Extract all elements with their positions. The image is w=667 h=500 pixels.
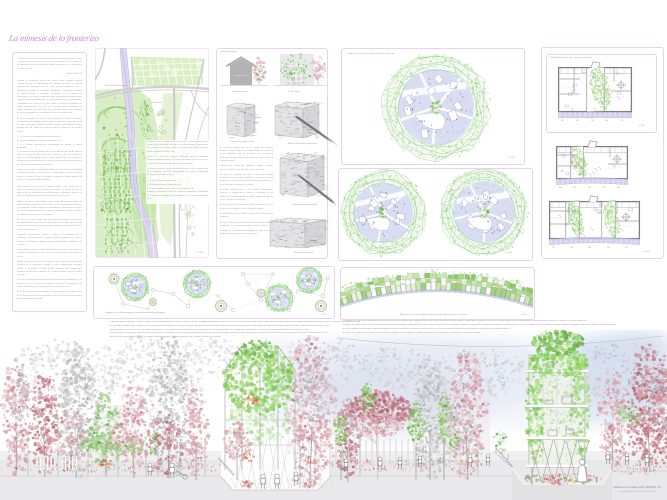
svg-text:vivienda arbol: vivienda arbol [234, 75, 247, 77]
svg-text:Diagramh en urbbe energetica c: Diagramh en urbbe energetica como habjet… [105, 311, 165, 314]
svg-text:215: 215 [620, 120, 623, 122]
svg-text:e 1:006: e 1:006 [321, 314, 327, 316]
svg-text:e 1:500: e 1:500 [520, 314, 526, 316]
svg-text:456: 456 [602, 187, 605, 189]
svg-text:260: 260 [588, 247, 591, 249]
svg-text:382: 382 [617, 187, 620, 189]
svg-text:232: 232 [591, 120, 594, 122]
svg-text:Stage Real del Manzanares: Stage Real del Manzanares [105, 84, 127, 87]
svg-text:camino del rio: camino del rio [151, 102, 162, 104]
svg-text:207: 207 [552, 247, 555, 249]
svg-text:412: 412 [576, 120, 579, 122]
svg-text:380: 380 [570, 247, 573, 249]
svg-text:419: 419 [588, 187, 591, 189]
svg-text:273: 273 [625, 247, 628, 249]
svg-text:441: 441 [561, 120, 564, 122]
svg-text:362: 362 [607, 247, 610, 249]
svg-text:500: 500 [605, 120, 608, 122]
svg-text:229: 229 [573, 187, 576, 189]
svg-text:Agrupacion en linea unidades a: Agrupacion en linea unidades agrariaband… [400, 313, 469, 316]
svg-text:490: 490 [559, 187, 562, 189]
